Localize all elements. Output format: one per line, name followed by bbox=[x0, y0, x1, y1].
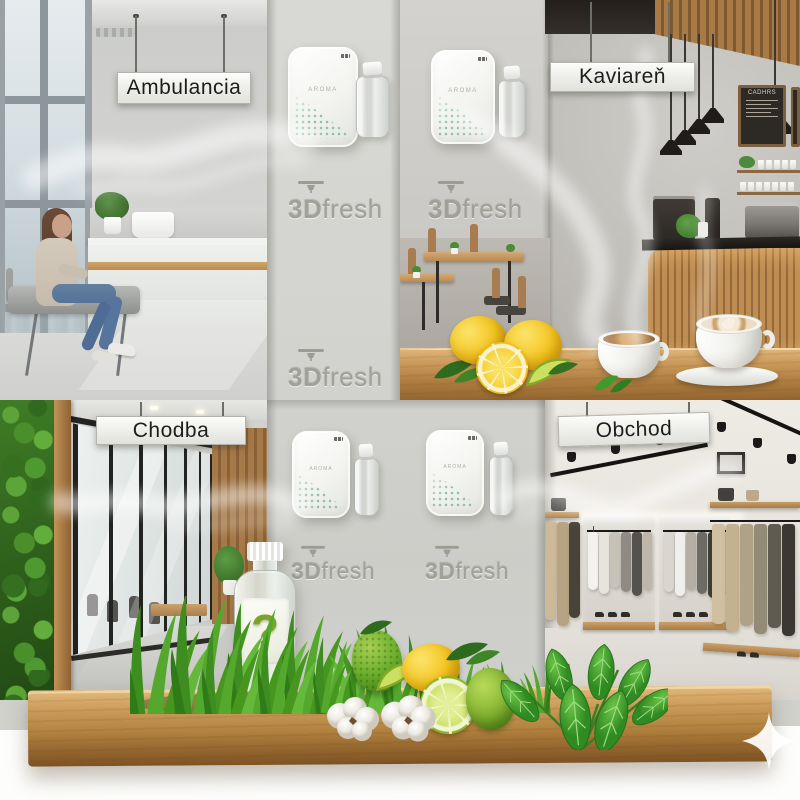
garment bbox=[632, 532, 642, 596]
lemon-half bbox=[476, 342, 528, 394]
bottle-cap bbox=[503, 65, 520, 82]
table-plant-pot bbox=[451, 248, 458, 254]
leaf-icon bbox=[358, 616, 394, 638]
device-model-label: AROMA bbox=[288, 87, 358, 93]
garment bbox=[610, 532, 620, 588]
clothes-rail bbox=[710, 520, 800, 522]
sign-rod bbox=[135, 16, 137, 73]
espresso-machine bbox=[745, 202, 799, 238]
ceiling bbox=[92, 0, 267, 26]
spotlight-icon bbox=[787, 454, 796, 464]
counter-wood-trim bbox=[88, 262, 267, 270]
wall-shelf bbox=[737, 192, 800, 195]
ceiling-light bbox=[150, 406, 158, 410]
device-dot-pattern bbox=[431, 466, 475, 509]
device-indicator bbox=[334, 437, 343, 441]
brand-logo: 3Dfresh bbox=[291, 545, 375, 585]
sign-obchod: Obchod bbox=[558, 412, 711, 447]
menu-line bbox=[746, 116, 778, 117]
device-model-label: AROMA bbox=[292, 466, 350, 472]
brand-prefix: 3D bbox=[425, 558, 455, 584]
brand-prefix: 3D bbox=[288, 362, 322, 392]
brand-logo: 3Dfresh bbox=[425, 545, 509, 585]
garment bbox=[621, 532, 631, 592]
printer-head-icon bbox=[298, 348, 324, 361]
garment bbox=[726, 524, 739, 632]
aroma-diffuser-device: AROMA bbox=[288, 47, 358, 147]
garment bbox=[675, 532, 685, 596]
bottom-background bbox=[0, 730, 30, 770]
glass-mullion bbox=[73, 418, 78, 668]
brand-suffix: fresh bbox=[322, 194, 382, 224]
person-legs bbox=[52, 284, 116, 303]
garment bbox=[768, 524, 781, 628]
garment bbox=[557, 522, 569, 626]
leaf-icon bbox=[444, 636, 502, 666]
bottle-cap bbox=[493, 442, 508, 459]
wall-seam bbox=[390, 0, 400, 400]
cafe-table bbox=[400, 274, 454, 282]
chair bbox=[492, 268, 500, 298]
reception-counter-top bbox=[88, 238, 267, 245]
reception-monitor bbox=[132, 212, 174, 238]
device-dot-pattern bbox=[437, 89, 486, 136]
menu-chalkboard: CADHRS bbox=[738, 85, 786, 147]
ceiling-light bbox=[196, 410, 204, 414]
lamp-cord bbox=[712, 34, 714, 108]
refill-bottle bbox=[356, 76, 389, 138]
device-dot-pattern bbox=[297, 468, 341, 512]
sign-rod bbox=[590, 2, 592, 64]
wall-seam bbox=[267, 400, 545, 410]
wall-shelf bbox=[710, 502, 800, 508]
aroma-diffuser-device: AROMA bbox=[426, 430, 484, 516]
table-plant bbox=[506, 244, 515, 252]
light-track bbox=[701, 400, 800, 440]
brand-suffix: fresh bbox=[462, 194, 522, 224]
brand-suffix: fresh bbox=[455, 558, 509, 584]
green-wall-frame bbox=[54, 400, 71, 700]
refill-bottle bbox=[354, 458, 379, 516]
cafe-tabletop bbox=[400, 300, 800, 400]
device-indicator bbox=[341, 54, 350, 58]
refill-bottle bbox=[498, 80, 525, 138]
menu-line bbox=[746, 104, 771, 105]
printer-head-icon bbox=[435, 545, 459, 557]
menu-line bbox=[746, 100, 778, 101]
promo-collage-3dfresh: CADHRS bbox=[0, 0, 800, 800]
spotlight-icon bbox=[753, 438, 762, 448]
device-dot-pattern bbox=[294, 89, 347, 139]
menu-line bbox=[746, 108, 778, 109]
device-model-label: AROMA bbox=[431, 88, 495, 94]
bottle-cap bbox=[359, 444, 374, 461]
garment bbox=[664, 532, 674, 592]
scene-waiting-room bbox=[0, 0, 267, 400]
sign-chodba: Chodba bbox=[96, 416, 246, 445]
leaf-icon bbox=[546, 358, 580, 378]
table-plant-pot bbox=[413, 272, 420, 278]
garment bbox=[545, 522, 558, 620]
brand-prefix: 3D bbox=[288, 194, 322, 224]
brand-suffix: fresh bbox=[322, 362, 382, 392]
chair bbox=[470, 224, 478, 254]
sign-rod bbox=[223, 16, 225, 73]
glass-mullion bbox=[109, 418, 113, 668]
menu-chalkboard bbox=[791, 87, 800, 147]
air-vent bbox=[96, 28, 136, 37]
sign-kaviaren: Kaviareň bbox=[550, 62, 695, 92]
device-indicator bbox=[478, 57, 487, 61]
refill-bottle bbox=[489, 456, 513, 516]
printer-head-icon bbox=[438, 180, 464, 193]
garment bbox=[782, 524, 795, 636]
cup-handle bbox=[760, 330, 775, 349]
garment bbox=[712, 524, 725, 624]
handbag bbox=[746, 490, 759, 501]
living-green-wall bbox=[0, 400, 54, 700]
wall-shelf bbox=[545, 512, 579, 518]
spotlight-icon bbox=[567, 452, 576, 462]
printer-head-icon bbox=[301, 545, 325, 557]
bottle-cap bbox=[247, 542, 283, 561]
cafe-table bbox=[424, 252, 524, 261]
spotlight-icon bbox=[717, 422, 726, 432]
sign-label: Obchod bbox=[595, 416, 672, 442]
cappuccino-cup bbox=[676, 316, 786, 390]
brand-logo: 3Dfresh bbox=[288, 348, 383, 393]
menu-title: CADHRS bbox=[743, 90, 781, 97]
device-model-label: AROMA bbox=[426, 464, 484, 470]
sign-label: Chodba bbox=[133, 419, 210, 443]
shoes bbox=[673, 612, 708, 617]
handbag bbox=[718, 488, 734, 501]
cotton-bolls-icon bbox=[324, 688, 440, 748]
aroma-diffuser-device: AROMA bbox=[292, 431, 350, 518]
aroma-diffuser-device: AROMA bbox=[431, 50, 495, 144]
lamp-cord bbox=[698, 34, 700, 119]
sign-ambulancia: Ambulancia bbox=[117, 72, 251, 104]
brand-suffix: fresh bbox=[321, 558, 375, 584]
garment bbox=[599, 532, 609, 594]
mint-sprig-icon bbox=[590, 370, 634, 394]
brand-logo: 3Dfresh bbox=[428, 180, 523, 225]
cup-stack bbox=[758, 160, 796, 169]
garment bbox=[697, 532, 707, 594]
shoes bbox=[595, 612, 630, 617]
wall-shelf bbox=[737, 170, 800, 173]
seated-person bbox=[52, 214, 72, 238]
sign-label: Ambulancia bbox=[127, 76, 242, 100]
sign-label: Kaviareň bbox=[579, 65, 666, 89]
garment bbox=[686, 532, 696, 590]
handbag bbox=[551, 498, 566, 511]
bottle-cap bbox=[362, 61, 382, 78]
wall-seam bbox=[267, 0, 277, 400]
garment bbox=[740, 524, 753, 626]
sparkle-watermark-icon bbox=[742, 712, 796, 770]
saucer bbox=[676, 366, 778, 386]
mint-leaves-icon bbox=[498, 644, 668, 750]
brand-prefix: 3D bbox=[428, 194, 462, 224]
garment bbox=[569, 522, 580, 618]
garment bbox=[754, 524, 767, 634]
counter-jar bbox=[698, 222, 708, 237]
sign-rod bbox=[668, 2, 670, 64]
garment bbox=[588, 532, 598, 590]
device-indicator bbox=[468, 436, 477, 440]
niche-base bbox=[583, 622, 655, 630]
shelf-plant bbox=[739, 156, 755, 168]
brand-logo: 3Dfresh bbox=[288, 180, 383, 225]
picture-frame bbox=[717, 452, 745, 474]
plant-icon bbox=[95, 192, 129, 220]
clothes-niche bbox=[583, 516, 655, 624]
printer-head-icon bbox=[298, 180, 324, 193]
cup-stack bbox=[740, 182, 794, 191]
plant-pot bbox=[104, 217, 121, 234]
coffee-surface bbox=[603, 333, 655, 345]
garment bbox=[643, 532, 652, 590]
menu-line bbox=[746, 112, 771, 113]
